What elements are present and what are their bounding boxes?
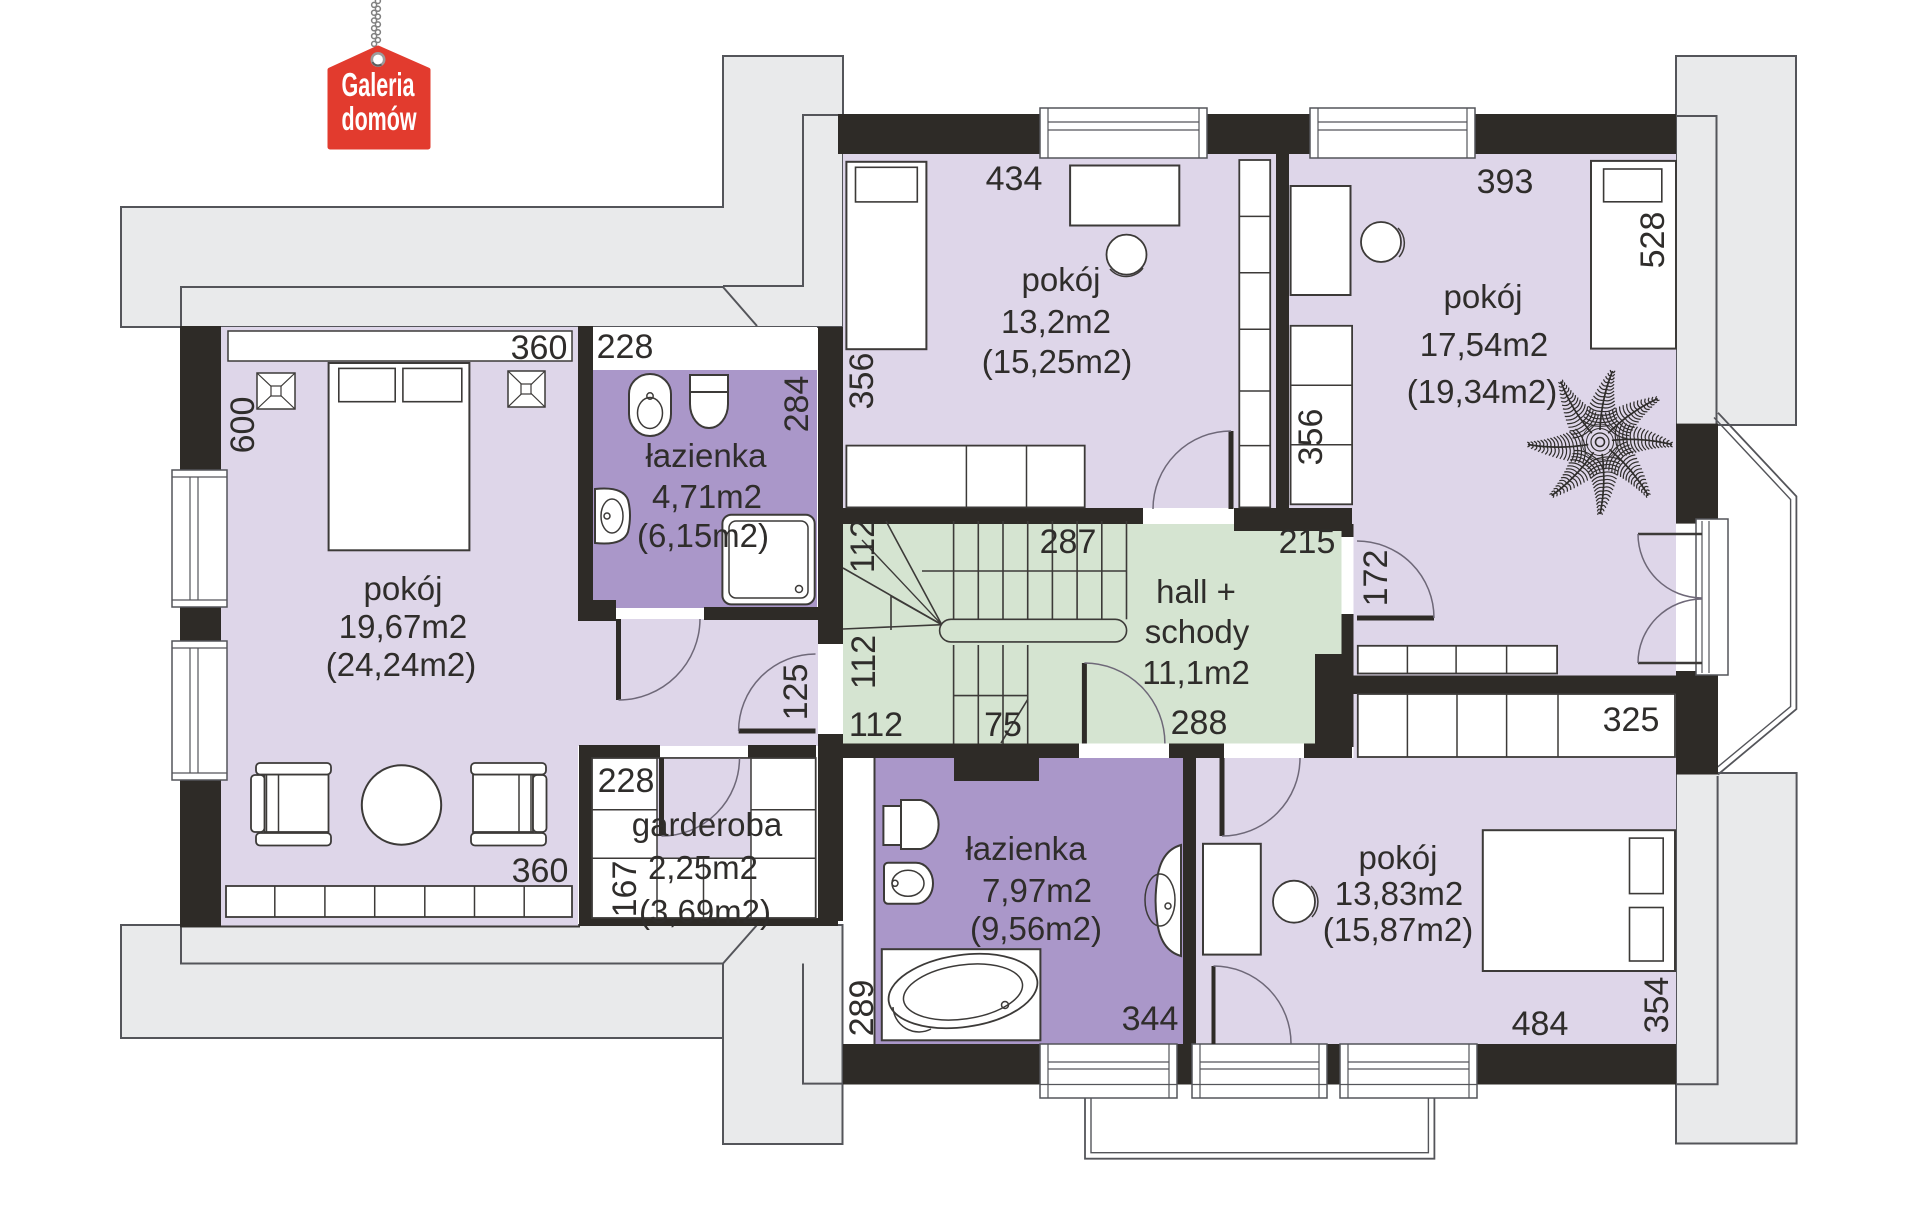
svg-text:(3,69m2): (3,69m2): [639, 893, 771, 930]
svg-text:393: 393: [1477, 163, 1534, 201]
svg-text:75: 75: [984, 706, 1022, 744]
svg-text:(15,87m2): (15,87m2): [1323, 911, 1473, 948]
svg-text:484: 484: [1512, 1005, 1569, 1043]
svg-text:pokój: pokój: [1444, 278, 1523, 315]
svg-text:600: 600: [224, 397, 262, 454]
svg-text:11,1m2: 11,1m2: [1142, 654, 1250, 691]
svg-text:288: 288: [1171, 704, 1228, 742]
svg-text:13,2m2: 13,2m2: [1001, 303, 1111, 340]
svg-text:112: 112: [844, 519, 882, 573]
svg-text:17,54m2: 17,54m2: [1420, 326, 1548, 363]
svg-text:360: 360: [512, 852, 569, 890]
svg-text:360: 360: [511, 329, 568, 367]
svg-text:344: 344: [1122, 1000, 1179, 1038]
svg-text:łazienka: łazienka: [965, 830, 1087, 867]
svg-text:112: 112: [849, 706, 903, 744]
svg-text:356: 356: [843, 353, 881, 410]
svg-text:354: 354: [1638, 977, 1676, 1034]
svg-text:pokój: pokój: [1022, 261, 1101, 298]
svg-text:pokój: pokój: [1359, 839, 1438, 876]
svg-text:łazienka: łazienka: [645, 437, 767, 474]
svg-text:schody: schody: [1145, 613, 1250, 650]
svg-text:hall +: hall +: [1156, 573, 1236, 610]
svg-text:(24,24m2): (24,24m2): [326, 646, 476, 683]
svg-text:domów: domów: [342, 100, 417, 137]
svg-text:19,67m2: 19,67m2: [339, 608, 467, 645]
svg-text:(15,25m2): (15,25m2): [982, 343, 1132, 380]
svg-text:325: 325: [1603, 701, 1660, 739]
svg-text:(9,56m2): (9,56m2): [970, 910, 1102, 947]
svg-text:228: 228: [598, 762, 655, 800]
svg-text:215: 215: [1279, 523, 1336, 561]
svg-text:287: 287: [1040, 523, 1097, 561]
svg-text:289: 289: [843, 980, 881, 1037]
svg-text:356: 356: [1292, 409, 1330, 466]
svg-text:Galeria: Galeria: [342, 66, 415, 103]
svg-text:7,97m2: 7,97m2: [982, 872, 1092, 909]
svg-text:13,83m2: 13,83m2: [1335, 875, 1463, 912]
svg-text:528: 528: [1634, 212, 1672, 269]
svg-text:(6,15m2): (6,15m2): [637, 517, 769, 554]
svg-text:112: 112: [845, 635, 883, 689]
svg-text:garderoba: garderoba: [632, 806, 783, 843]
svg-text:172: 172: [1357, 550, 1395, 607]
svg-text:(19,34m2): (19,34m2): [1407, 373, 1557, 410]
svg-text:2,25m2: 2,25m2: [648, 849, 758, 886]
svg-text:4,71m2: 4,71m2: [652, 478, 762, 515]
svg-text:434: 434: [986, 160, 1043, 198]
svg-text:125: 125: [777, 664, 815, 721]
svg-text:228: 228: [597, 328, 654, 366]
svg-text:pokój: pokój: [364, 570, 443, 607]
svg-text:284: 284: [778, 376, 816, 433]
